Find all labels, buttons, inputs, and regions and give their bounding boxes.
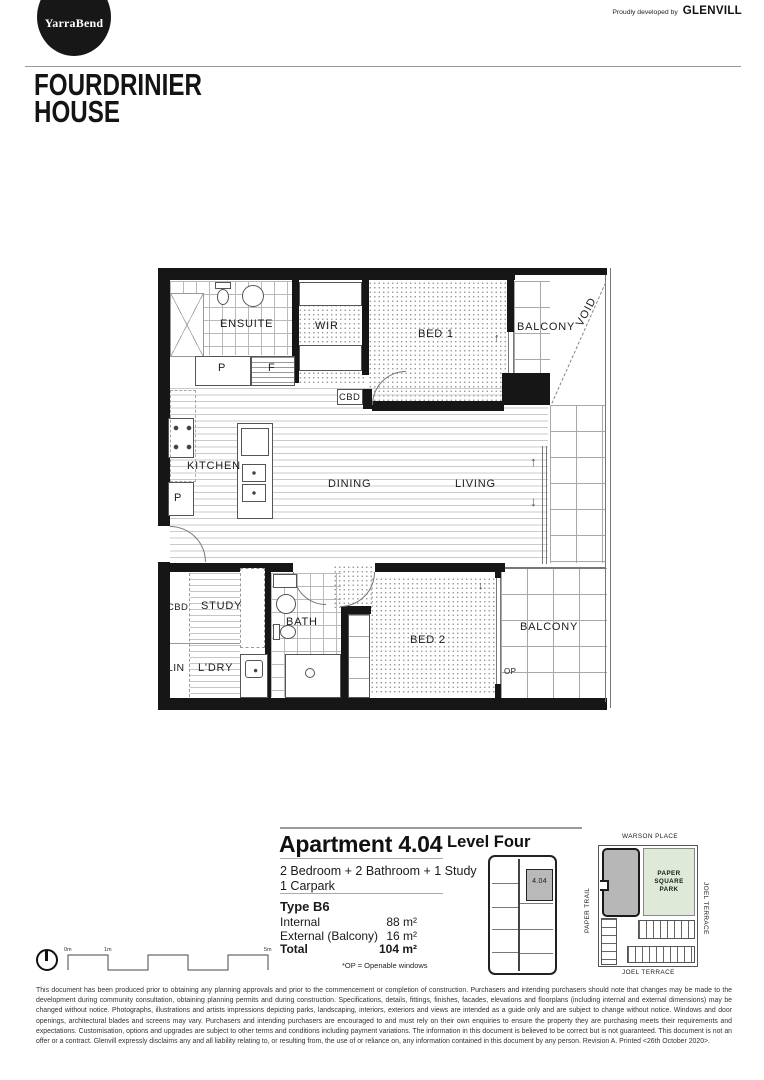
sink xyxy=(242,484,266,502)
yarrabend-logo: YarraBend xyxy=(37,0,111,56)
balcony-bottom-floor xyxy=(501,568,607,698)
developer-credit: Proudly developed by GLENVILL xyxy=(612,5,742,17)
toilet-ensuite-bowl xyxy=(217,289,229,305)
scale-bar-wave xyxy=(68,955,268,970)
room-label-ldry: L'DRY xyxy=(198,662,233,674)
lot-row xyxy=(627,946,695,963)
plan-right-border xyxy=(610,268,611,708)
arrow-up-icon: ↑ xyxy=(494,332,500,344)
balcony-bottom-edge xyxy=(505,567,606,569)
wall xyxy=(507,280,514,332)
wall xyxy=(502,373,550,405)
label-pantry: P xyxy=(174,492,182,504)
basin-bath xyxy=(276,594,296,614)
area-row: External (Balcony) 16 m² xyxy=(280,929,417,943)
level-key-plan: 4.04 xyxy=(488,855,557,975)
wall xyxy=(341,606,348,698)
paper-square-park: PAPER SQUARE PARK xyxy=(643,848,695,916)
key-corridor xyxy=(518,859,520,971)
label-cbd-study: CBD xyxy=(167,602,188,613)
arrow-up-icon: ↑ xyxy=(530,454,537,469)
window-living[interactable] xyxy=(542,446,543,564)
shower-drain xyxy=(305,668,315,678)
details-top-rule xyxy=(280,827,582,829)
wall xyxy=(375,563,505,572)
rangehood xyxy=(241,428,269,456)
area-value: 16 m² xyxy=(386,929,417,943)
building-name: FOURDRINIER HOUSE xyxy=(34,72,202,125)
key-wall xyxy=(492,952,518,953)
building-notch xyxy=(600,880,609,891)
north-arrow-needle xyxy=(45,950,48,961)
areas-table: Internal 88 m² External (Balcony) 16 m² … xyxy=(280,915,417,956)
street-joel-terrace-bottom: JOEL TERRACE xyxy=(622,969,675,976)
area-value: 88 m² xyxy=(386,915,417,929)
developer-name: GLENVILL xyxy=(683,5,742,17)
wall xyxy=(362,280,369,375)
room-label-balcony-top: BALCONY xyxy=(517,321,575,333)
study-floor xyxy=(190,573,240,697)
room-label-ensuite: ENSUITE xyxy=(220,318,273,330)
wall xyxy=(495,568,501,578)
scale-label-5m: 5m xyxy=(264,947,272,953)
config-line1: 2 Bedroom + 2 Bathroom + 1 Study xyxy=(280,864,477,878)
room-label-kitchen: KITCHEN xyxy=(187,460,241,472)
key-wall xyxy=(492,883,518,884)
op-footnote: *OP = Openable windows xyxy=(342,961,428,970)
wir-shelf xyxy=(299,282,362,306)
key-wall xyxy=(520,953,553,954)
wall xyxy=(513,268,607,275)
brochure-page: YarraBend Proudly developed by GLENVILL … xyxy=(0,0,764,1080)
room-label-bed1: BED 1 xyxy=(418,328,454,340)
label-cbd-hall: CBD xyxy=(339,392,360,403)
lin-divider xyxy=(170,643,240,644)
details-rule xyxy=(280,858,443,859)
unit-number: 4.04 xyxy=(532,878,547,885)
room-label-void: VOID xyxy=(574,296,599,329)
details-rule xyxy=(280,893,443,894)
highlighted-unit[interactable]: 4.04 xyxy=(526,869,553,901)
bed2-robe xyxy=(348,614,370,698)
room-label-bed2: BED 2 xyxy=(410,634,446,646)
area-value: 104 m² xyxy=(379,942,417,956)
toilet-bath xyxy=(273,624,280,640)
key-wall xyxy=(520,903,553,904)
wall xyxy=(158,698,607,710)
bath-cabinet xyxy=(273,574,297,588)
window-bed2 xyxy=(500,578,501,684)
cbd-study-strip xyxy=(170,573,190,697)
label-pantry-joinery: P xyxy=(218,362,226,374)
label-op: OP xyxy=(504,667,516,676)
label-fridge: F xyxy=(268,362,276,374)
sink xyxy=(242,464,266,482)
room-label-bath: BATH xyxy=(286,616,318,628)
terrace-tiles xyxy=(550,405,606,563)
arrow-down-icon: ↓ xyxy=(530,494,537,509)
wall xyxy=(158,268,515,280)
room-label-living: LIVING xyxy=(455,478,496,490)
wir-shelf xyxy=(299,345,362,371)
street-paper-trail: PAPER TRAIL xyxy=(584,888,591,933)
wall xyxy=(495,684,501,698)
arrow-down-icon: ↓ xyxy=(478,580,484,592)
label-lin: LIN xyxy=(167,662,185,674)
lot-row xyxy=(638,920,695,939)
room-label-study: STUDY xyxy=(201,600,242,612)
room-label-balcony-bottom: BALCONY xyxy=(520,621,578,633)
street-warson-place: WARSON PLACE xyxy=(622,833,678,840)
laundry-trough-basin xyxy=(245,660,263,678)
key-wall xyxy=(492,907,518,908)
wall xyxy=(170,563,293,572)
developer-prefix: Proudly developed by xyxy=(612,9,677,16)
building-name-line2: HOUSE xyxy=(34,99,202,126)
room-label-wir: WIR xyxy=(315,320,339,332)
shower-ensuite xyxy=(170,293,204,357)
area-row: Internal 88 m² xyxy=(280,915,417,929)
kitchen-living-floor xyxy=(170,388,548,563)
toilet-ensuite xyxy=(215,282,231,289)
room-label-dining: DINING xyxy=(328,478,371,490)
level-key-title: Level Four xyxy=(447,833,530,852)
window-living xyxy=(546,446,547,564)
yarrabend-logo-text: YarraBend xyxy=(45,16,103,31)
config-line2: 1 Carpark xyxy=(280,879,335,893)
type-label: Type B6 xyxy=(280,899,330,914)
lot-strip xyxy=(601,918,617,965)
key-wall xyxy=(492,929,518,930)
site-map: PAPER SQUARE PARK xyxy=(598,845,698,967)
key-wall xyxy=(520,929,553,930)
basin-ensuite xyxy=(242,285,264,307)
study-desk xyxy=(240,568,265,648)
apartment-title: Apartment 4.04 xyxy=(279,831,442,858)
plan-right-border xyxy=(605,275,606,702)
street-joel-terrace-right: JOEL TERRACE xyxy=(702,882,709,935)
window-bed2[interactable] xyxy=(496,578,497,684)
disclaimer-text: This document has been produced prior to… xyxy=(36,986,732,1047)
scale-label-0m: 0m xyxy=(64,947,72,953)
area-label: External (Balcony) xyxy=(280,929,378,943)
area-row: Total 104 m² xyxy=(280,942,417,956)
wall xyxy=(158,562,170,710)
wall xyxy=(363,389,372,409)
scale-label-1m: 1m xyxy=(104,947,112,953)
scale-bar: 0m 1m 5m xyxy=(60,942,290,976)
area-label: Internal xyxy=(280,915,320,929)
park-label: PAPER SQUARE PARK xyxy=(652,870,686,894)
floor-plan: ↑ ↓ ↑ ↓ ENSUITE WIR BED 1 BALCONY VOID C… xyxy=(158,268,613,710)
